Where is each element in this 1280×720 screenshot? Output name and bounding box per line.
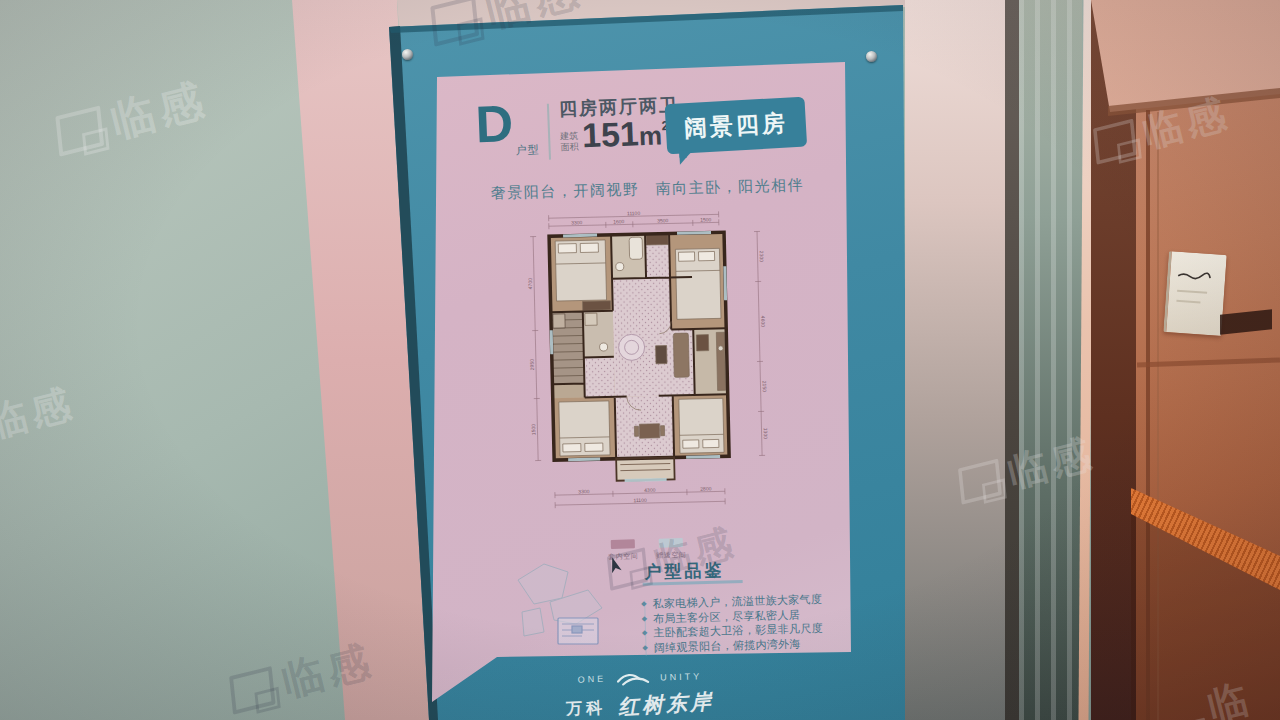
svg-text:2300: 2300 xyxy=(759,251,765,262)
svg-text:11100: 11100 xyxy=(627,210,641,216)
svg-text:3300: 3300 xyxy=(578,488,589,494)
svg-text:4300: 4300 xyxy=(644,487,655,493)
screw-right xyxy=(866,51,877,62)
svg-text:2950: 2950 xyxy=(529,359,535,370)
unit-label: 户型 xyxy=(515,142,540,158)
unit-letter: D xyxy=(475,97,515,150)
brand-word-one: ONE xyxy=(578,674,607,685)
watermark-box-icon xyxy=(229,666,275,715)
svg-text:3500: 3500 xyxy=(657,217,668,223)
wave-logo-icon xyxy=(615,670,651,687)
photo-scene: D 户型 四房两厅两卫 建筑 面积 151m2 阔景四房 奢景阳台，开阔视野 南… xyxy=(0,0,1280,720)
developer-row: 万科 红树东岸 xyxy=(520,688,761,720)
svg-text:4700: 4700 xyxy=(527,278,533,289)
area-value: 151m2 xyxy=(581,113,670,155)
svg-text:1500: 1500 xyxy=(530,424,536,435)
svg-text:2150: 2150 xyxy=(762,381,768,392)
watermark: 临感 xyxy=(0,377,81,462)
svg-text:1600: 1600 xyxy=(613,218,624,224)
wall-pillar xyxy=(905,0,1007,720)
watermark-box-icon xyxy=(55,105,104,156)
watermark: 临感 xyxy=(50,70,214,165)
poster-header: D 户型 四房两厅两卫 建筑 面积 151m2 阔景四房 xyxy=(467,85,822,176)
sign-text-scribble xyxy=(1167,251,1222,324)
wall-sign xyxy=(1163,251,1227,336)
screw-left xyxy=(402,49,413,60)
project-name: 红树东岸 xyxy=(617,687,715,720)
review-bullets: 私家电梯入户，流溢世族大家气度 布局主客分区，尽享私密人居 主卧配套超大卫浴，彰… xyxy=(641,592,823,655)
legend-item: 赠送空间 xyxy=(656,538,687,561)
developer-name: 万科 xyxy=(566,698,607,720)
header-divider xyxy=(547,104,551,160)
pillar-edge xyxy=(1005,0,1020,720)
svg-text:3300: 3300 xyxy=(571,219,582,225)
elevator-door-panel xyxy=(1019,0,1082,720)
feature-badge: 阔景四房 xyxy=(665,97,808,155)
svg-text:1500: 1500 xyxy=(700,216,711,222)
legend-swatch-gift xyxy=(659,538,683,548)
area-prefix: 建筑 面积 xyxy=(560,131,579,153)
svg-text:1300: 1300 xyxy=(763,428,769,439)
floor-plan: 11100 3300 1600 3500 1500 3300 4300 2800… xyxy=(519,207,778,521)
legend-swatch-inner xyxy=(611,539,635,549)
svg-text:11100: 11100 xyxy=(633,497,647,503)
svg-text:2800: 2800 xyxy=(700,485,711,491)
svg-text:4600: 4600 xyxy=(760,316,766,327)
brand-word-unity: UNITY xyxy=(660,671,702,682)
